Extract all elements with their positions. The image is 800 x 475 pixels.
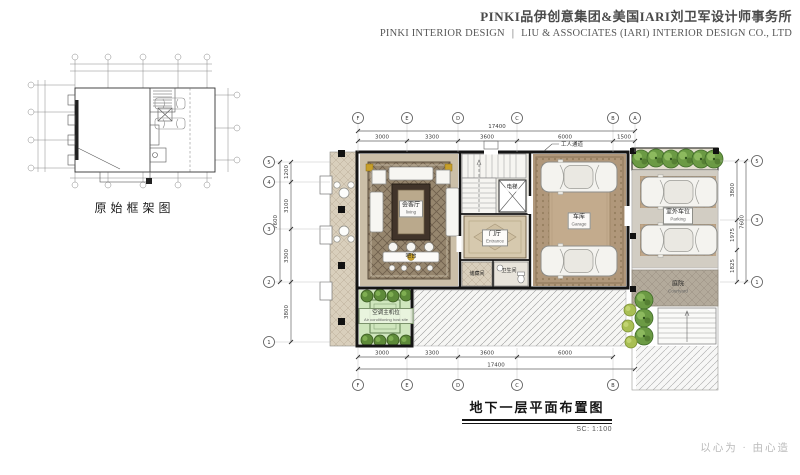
grid-top-e: E: [405, 116, 408, 122]
grid-left-1: 1: [267, 340, 270, 346]
room-label-garage: 车库 Garage: [568, 212, 591, 229]
dim-bottom-1: 3000: [375, 351, 389, 357]
dim-right-3: 1825: [730, 259, 736, 273]
grid-left-5: 5: [267, 160, 270, 166]
floor-plan-drawing: 17400 3000 3300 3600 6000 1500 3000 3300…: [0, 0, 800, 475]
plan-title: 地下一层平面布置图: [462, 397, 612, 421]
grid-top-f: F: [357, 116, 360, 122]
room-label-bar: 吧台: [403, 253, 418, 262]
dim-top-5: 1500: [617, 135, 631, 141]
grid-right-5: 5: [755, 159, 758, 165]
dim-bottom-2: 3300: [425, 351, 439, 357]
dim-right-2: 1975: [730, 228, 736, 242]
dim-right-1: 3800: [730, 183, 736, 197]
room-label-storage: 储藏间: [467, 270, 486, 278]
dim-bottom-4: 6000: [558, 351, 572, 357]
grid-left-3: 3: [267, 227, 270, 233]
title-block: 地下一层平面布置图 SC: 1:100: [462, 397, 612, 433]
dim-top-2: 3300: [425, 135, 439, 141]
worker-passage-note: 工人通道: [561, 140, 583, 148]
dim-right-outer: 7600: [740, 215, 746, 229]
room-label-elevator: 电梯: [503, 184, 520, 193]
dim-left-4: 3800: [284, 305, 290, 319]
footer-slogan: 以心为 · 由心造: [700, 440, 790, 455]
dim-left-2: 3100: [284, 199, 290, 213]
living-room-area: [360, 154, 459, 286]
plan-scale: SC: 1:100: [462, 426, 612, 433]
page-canvas: PINKI品伊创意集团&美国IARI刘卫军设计师事务所 PINKI INTERI…: [0, 0, 800, 475]
room-label-foyer: 门厅 Entrance: [482, 229, 508, 246]
dim-top-3: 3600: [480, 135, 494, 141]
worker-passage-leader: [544, 144, 559, 151]
grid-left-2: 2: [267, 280, 270, 286]
dim-top-1: 3000: [375, 135, 389, 141]
grid-top-a: A: [633, 116, 637, 122]
core-area: [460, 152, 530, 288]
grid-right-1: 1: [755, 280, 758, 286]
small-plan-caption: 原始框架图: [52, 199, 217, 216]
room-label-bath: 卫生间: [499, 267, 518, 275]
grid-bottom-d: D: [456, 383, 460, 389]
grid-top-d: D: [456, 116, 460, 122]
grid-left-4: 4: [267, 180, 270, 186]
grid-bottom-f: F: [357, 383, 360, 389]
dim-left-1: 1200: [284, 165, 290, 179]
outdoor-car-2: [641, 223, 717, 258]
grid-bottom-b: B: [611, 383, 615, 389]
room-label-living: 会客厅 living: [399, 200, 423, 217]
dim-bottom-3: 3600: [480, 351, 494, 357]
dim-top-total: 17400: [488, 124, 506, 130]
garage-car-2: [541, 244, 617, 279]
room-label-courtyard: 庭院 Courtyard: [665, 280, 691, 295]
grid-top-b: B: [611, 116, 615, 122]
dim-bottom-total: 17400: [487, 363, 505, 369]
terrace-area: [320, 152, 357, 346]
title-underline: [462, 423, 612, 424]
grid-top-c: C: [515, 116, 519, 122]
room-label-parking: 室外车位 Parking: [663, 207, 693, 224]
room-label-ac: 空调主机位 Air conditioning host site: [359, 308, 414, 324]
grid-right-3: 3: [755, 218, 758, 224]
dim-left-3: 3300: [284, 249, 290, 263]
outdoor-car-1: [641, 175, 717, 210]
grid-bottom-e: E: [405, 383, 408, 389]
garage-car-1: [541, 160, 617, 195]
grid-bottom-c: C: [515, 383, 519, 389]
small-plan-drawing: [28, 54, 240, 188]
